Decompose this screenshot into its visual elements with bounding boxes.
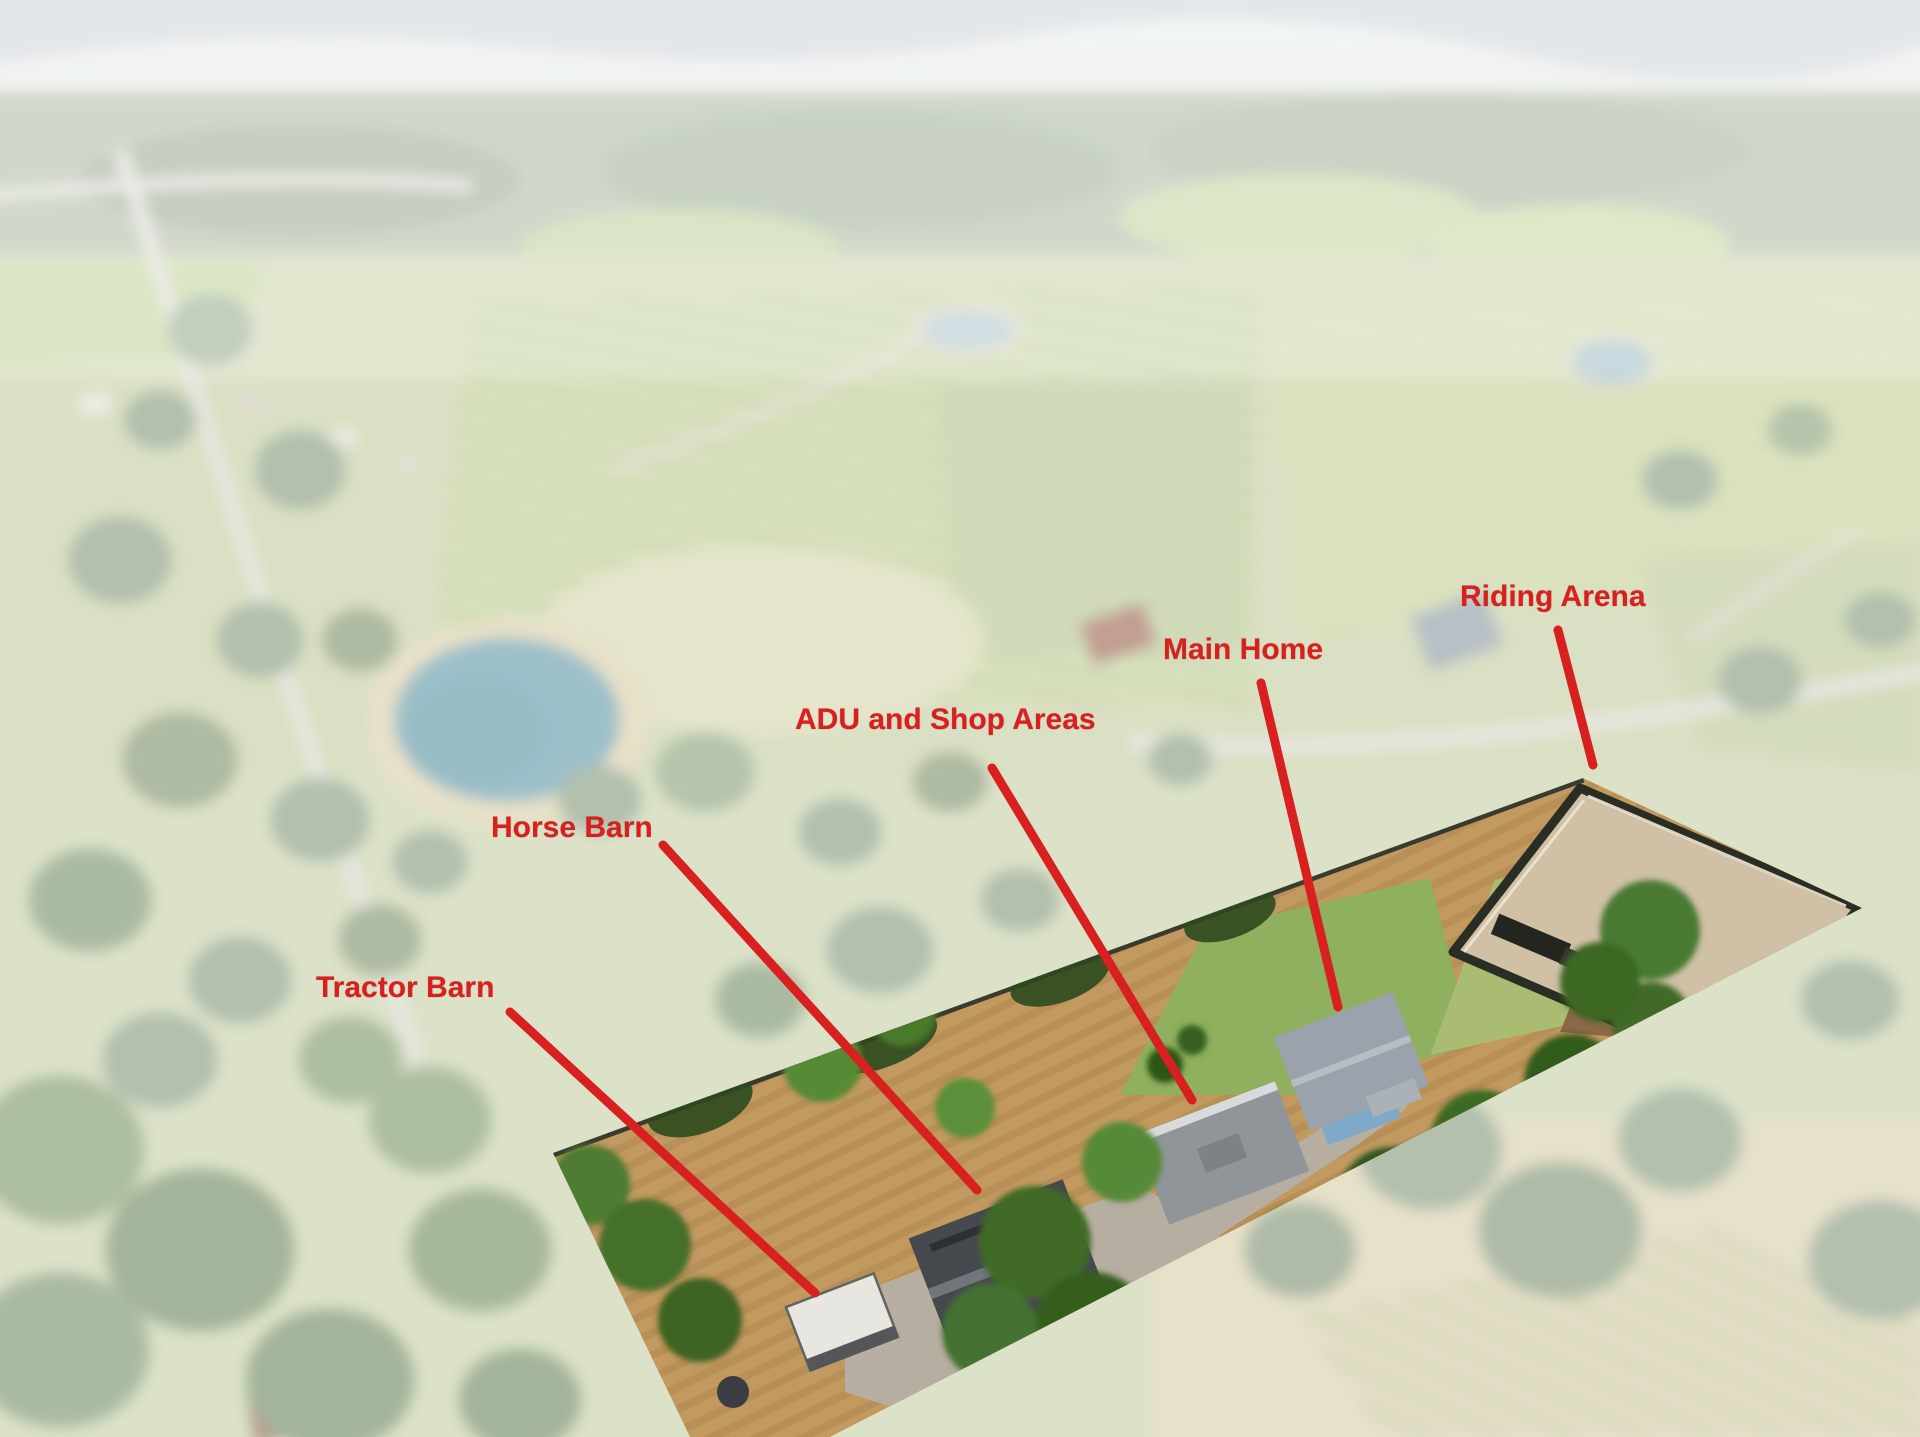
adu-shop-label: ADU and Shop Areas [795, 704, 1096, 736]
main-home-label: Main Home [1163, 634, 1323, 666]
aerial-property-photo: Tractor Barn Horse Barn ADU and Shop Are… [0, 0, 1920, 1437]
tractor-barn-label: Tractor Barn [316, 972, 494, 1004]
riding-arena-label: Riding Arena [1460, 581, 1646, 613]
horse-barn-label: Horse Barn [491, 812, 653, 844]
water-tank [717, 1376, 749, 1408]
